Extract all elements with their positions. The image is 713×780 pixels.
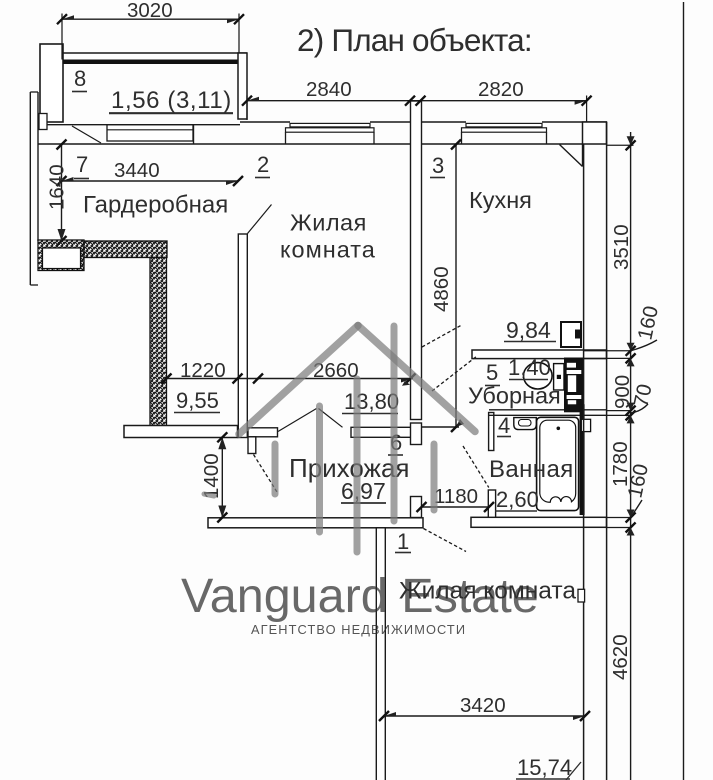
svg-text:9,55: 9,55 [176, 388, 219, 413]
svg-text:Vanguard Estate: Vanguard Estate [181, 569, 539, 623]
svg-text:2,60: 2,60 [496, 487, 539, 512]
svg-text:6,97: 6,97 [341, 478, 386, 504]
svg-text:2: 2 [257, 152, 269, 177]
svg-text:2) План объекта:: 2) План объекта: [297, 22, 532, 58]
svg-text:3440: 3440 [114, 159, 160, 182]
svg-text:9,84: 9,84 [506, 317, 551, 343]
svg-text:4860: 4860 [430, 266, 453, 312]
svg-text:15,74: 15,74 [517, 755, 572, 780]
svg-text:3: 3 [432, 153, 444, 178]
svg-text:Гардеробная: Гардеробная [83, 192, 228, 219]
svg-text:160: 160 [633, 304, 663, 342]
svg-text:2820: 2820 [478, 78, 524, 101]
svg-text:3420: 3420 [460, 694, 506, 717]
svg-text:АГЕНТСТВО НЕДВИЖИМОСТИ: АГЕНТСТВО НЕДВИЖИМОСТИ [251, 622, 466, 637]
svg-text:70: 70 [629, 382, 656, 409]
svg-text:1220: 1220 [180, 359, 226, 382]
svg-text:Ванная: Ванная [489, 456, 574, 483]
svg-text:3510: 3510 [610, 224, 633, 270]
svg-text:Кухня: Кухня [469, 187, 532, 213]
svg-text:2840: 2840 [306, 78, 352, 101]
svg-text:1: 1 [397, 529, 409, 554]
svg-text:3020: 3020 [127, 0, 173, 22]
svg-text:7: 7 [76, 152, 88, 177]
svg-text:1180: 1180 [434, 485, 478, 508]
svg-text:Уборная: Уборная [468, 383, 561, 409]
svg-text:1,40: 1,40 [508, 355, 551, 380]
svg-text:4620: 4620 [609, 634, 632, 680]
svg-text:8: 8 [74, 66, 86, 91]
svg-text:4: 4 [498, 413, 510, 438]
svg-text:Жилая: Жилая [290, 210, 367, 236]
svg-text:1,56 (3,11): 1,56 (3,11) [111, 87, 232, 114]
svg-text:5: 5 [486, 360, 498, 385]
svg-text:1640: 1640 [46, 164, 69, 210]
svg-text:комната: комната [280, 237, 376, 263]
